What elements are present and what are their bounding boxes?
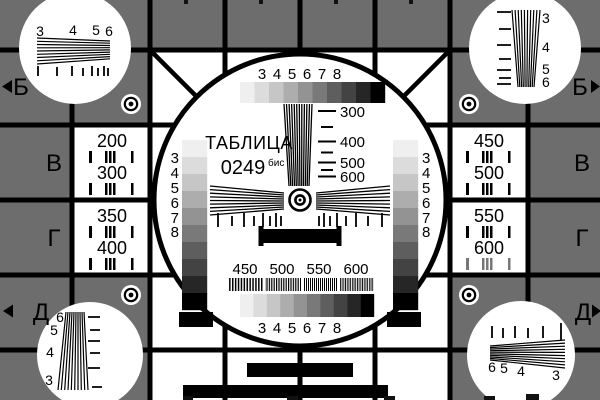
bottom-grayscale-steps: [240, 294, 374, 317]
wedge-label: 6: [488, 359, 496, 375]
row-marker: В: [574, 150, 590, 177]
wedge-label: 3: [45, 372, 53, 388]
top-scale-label: 4: [273, 66, 281, 83]
bottom-scale-label: 4: [273, 320, 281, 337]
wedge-label: 5: [500, 360, 508, 376]
row-marker: Д: [33, 299, 49, 326]
bar-label: 8: [171, 224, 179, 241]
wedge-label: 4: [69, 22, 77, 38]
bottom-scale-label: 6: [303, 320, 311, 337]
cell-freq-label: 600: [474, 238, 504, 258]
cell-freq-label: 350: [97, 206, 127, 226]
bottom-scale-label: 5: [288, 320, 296, 337]
wedge-label: 6: [105, 23, 113, 39]
top-scale-label: 5: [288, 66, 296, 83]
cell-freq-label: 200: [97, 131, 127, 151]
card-number: 0249: [221, 157, 266, 179]
left-grayscale-bar: [182, 140, 207, 310]
freq-label: 300: [340, 104, 365, 121]
wedge-label: 4: [46, 344, 54, 360]
row-marker: Б: [13, 74, 29, 101]
wedge-label: 6: [542, 74, 550, 90]
row-marker: Б: [572, 74, 588, 101]
cell-freq-label: 500: [474, 163, 504, 183]
top-scale-label: 8: [333, 66, 341, 83]
freq-label: 500: [269, 261, 294, 278]
row-marker: Г: [48, 225, 61, 252]
row-marker: В: [46, 150, 62, 177]
bar-label: 8: [422, 224, 430, 241]
left-bar-labels: 3 4 5 6 7 8: [171, 150, 179, 241]
bottom-scale-label: 8: [333, 320, 341, 337]
freq-label: 600: [343, 261, 368, 278]
bottom-scale-label: 3: [258, 320, 266, 337]
top-scale-label: 6: [303, 66, 311, 83]
row-marker: Д: [575, 299, 591, 326]
wedge-label: 5: [50, 322, 58, 338]
freq-label: 450: [232, 261, 257, 278]
black-reference-bar: [259, 226, 342, 246]
wedge-label: 4: [517, 363, 525, 379]
row-marker: Г: [576, 225, 589, 252]
freq-label: 400: [340, 134, 365, 151]
wedge-label: 4: [542, 39, 550, 55]
center-frequency-labels: 300 400 500 600: [340, 104, 365, 186]
card-title-text: ТАБЛИЦА: [205, 133, 293, 153]
freq-label: 600: [340, 169, 365, 186]
wedge-label: 5: [92, 22, 100, 38]
cell-freq-label: 450: [474, 131, 504, 151]
cell-freq-label: 400: [97, 238, 127, 258]
cell-freq-label: 550: [474, 206, 504, 226]
uit-test-card: 3 4 5 6 7 8 300 400 500 600 ТАБЛИЦА 0249…: [0, 0, 600, 400]
freq-label: 550: [306, 261, 331, 278]
fine-line-resolution-bar: [228, 278, 374, 291]
wedge-label: 3: [542, 10, 550, 26]
card-number-suffix: бис: [268, 157, 284, 169]
wedge-label: 3: [552, 367, 560, 383]
top-scale-label: 7: [318, 66, 326, 83]
wedge-label: 3: [36, 23, 44, 39]
cell-freq-label: 300: [97, 163, 127, 183]
bottom-scale-label: 7: [318, 320, 326, 337]
right-grayscale-bar: [393, 140, 418, 310]
top-grayscale-steps: [240, 82, 385, 103]
top-scale-label: 3: [258, 66, 266, 83]
right-bar-labels: 3 4 5 6 7 8: [422, 150, 430, 241]
